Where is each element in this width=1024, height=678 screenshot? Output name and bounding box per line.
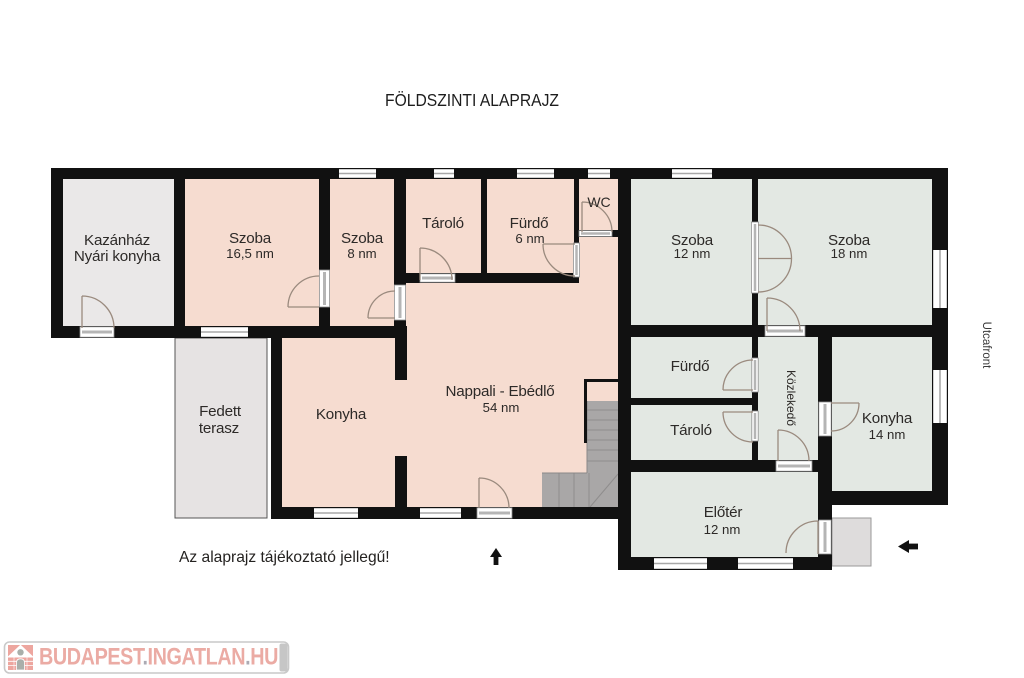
- svg-text:Fürdő: Fürdő: [671, 358, 710, 375]
- svg-text:Szoba: Szoba: [229, 230, 272, 247]
- svg-text:6 nm: 6 nm: [515, 231, 544, 246]
- svg-text:Konyha: Konyha: [862, 410, 913, 427]
- svg-text:BUDAPEST.INGATLAN.HU: BUDAPEST.INGATLAN.HU: [39, 644, 278, 671]
- svg-text:Nappali - Ebédlő: Nappali - Ebédlő: [445, 383, 554, 400]
- svg-text:Előtér: Előtér: [704, 504, 743, 521]
- svg-text:terasz: terasz: [199, 420, 239, 437]
- svg-text:Kazánház: Kazánház: [84, 232, 150, 249]
- svg-text:Konyha: Konyha: [316, 406, 367, 423]
- svg-text:14 nm: 14 nm: [869, 427, 906, 442]
- svg-text:Tároló: Tároló: [422, 215, 464, 232]
- svg-text:18 nm: 18 nm: [831, 246, 868, 261]
- svg-text:Az alaprajz tájékoztató jelleg: Az alaprajz tájékoztató jellegű!: [179, 549, 390, 566]
- svg-text:Fedett: Fedett: [199, 403, 242, 420]
- svg-text:FÖLDSZINTI ALAPRAJZ: FÖLDSZINTI ALAPRAJZ: [385, 90, 559, 110]
- svg-text:Nyári konyha: Nyári konyha: [74, 248, 161, 265]
- svg-text:Utcafront: Utcafront: [980, 322, 992, 369]
- svg-text:12 nm: 12 nm: [704, 522, 741, 537]
- svg-text:12 nm: 12 nm: [674, 246, 711, 261]
- svg-text:16,5 nm: 16,5 nm: [226, 246, 274, 261]
- svg-text:Fürdő: Fürdő: [510, 215, 549, 232]
- svg-text:8 nm: 8 nm: [347, 246, 376, 261]
- svg-text:Tároló: Tároló: [670, 422, 712, 439]
- svg-text:54 nm: 54 nm: [483, 400, 520, 415]
- svg-text:WC: WC: [587, 194, 610, 210]
- svg-text:Szoba: Szoba: [341, 230, 384, 247]
- svg-text:Közlekedő: Közlekedő: [784, 370, 798, 426]
